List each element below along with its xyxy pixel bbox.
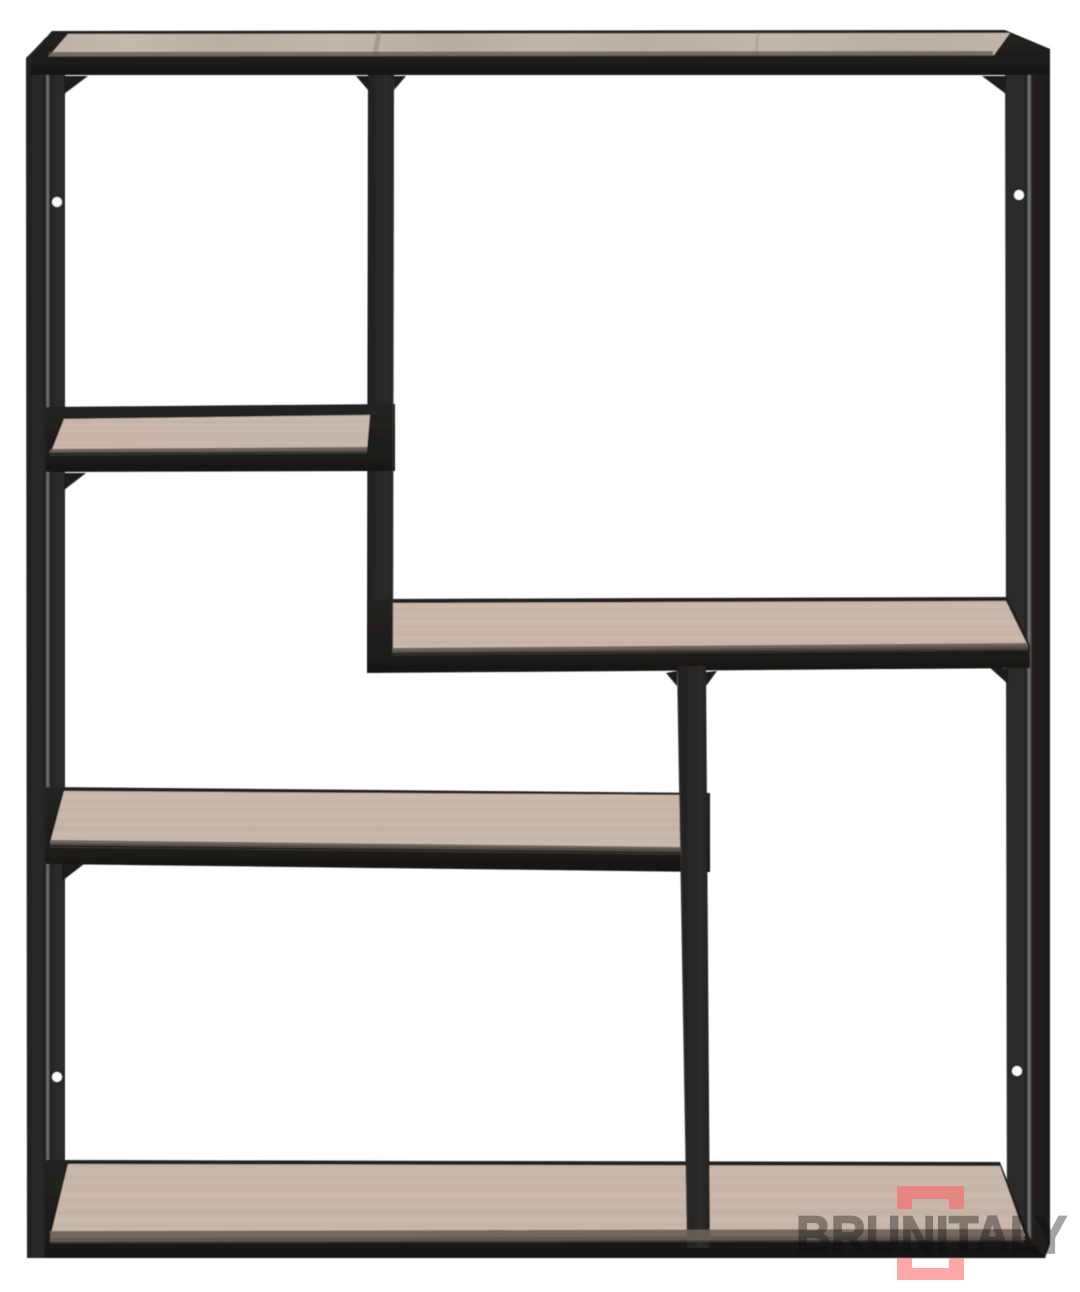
- svg-text:BRUNITALY: BRUNITALY: [796, 1206, 1067, 1265]
